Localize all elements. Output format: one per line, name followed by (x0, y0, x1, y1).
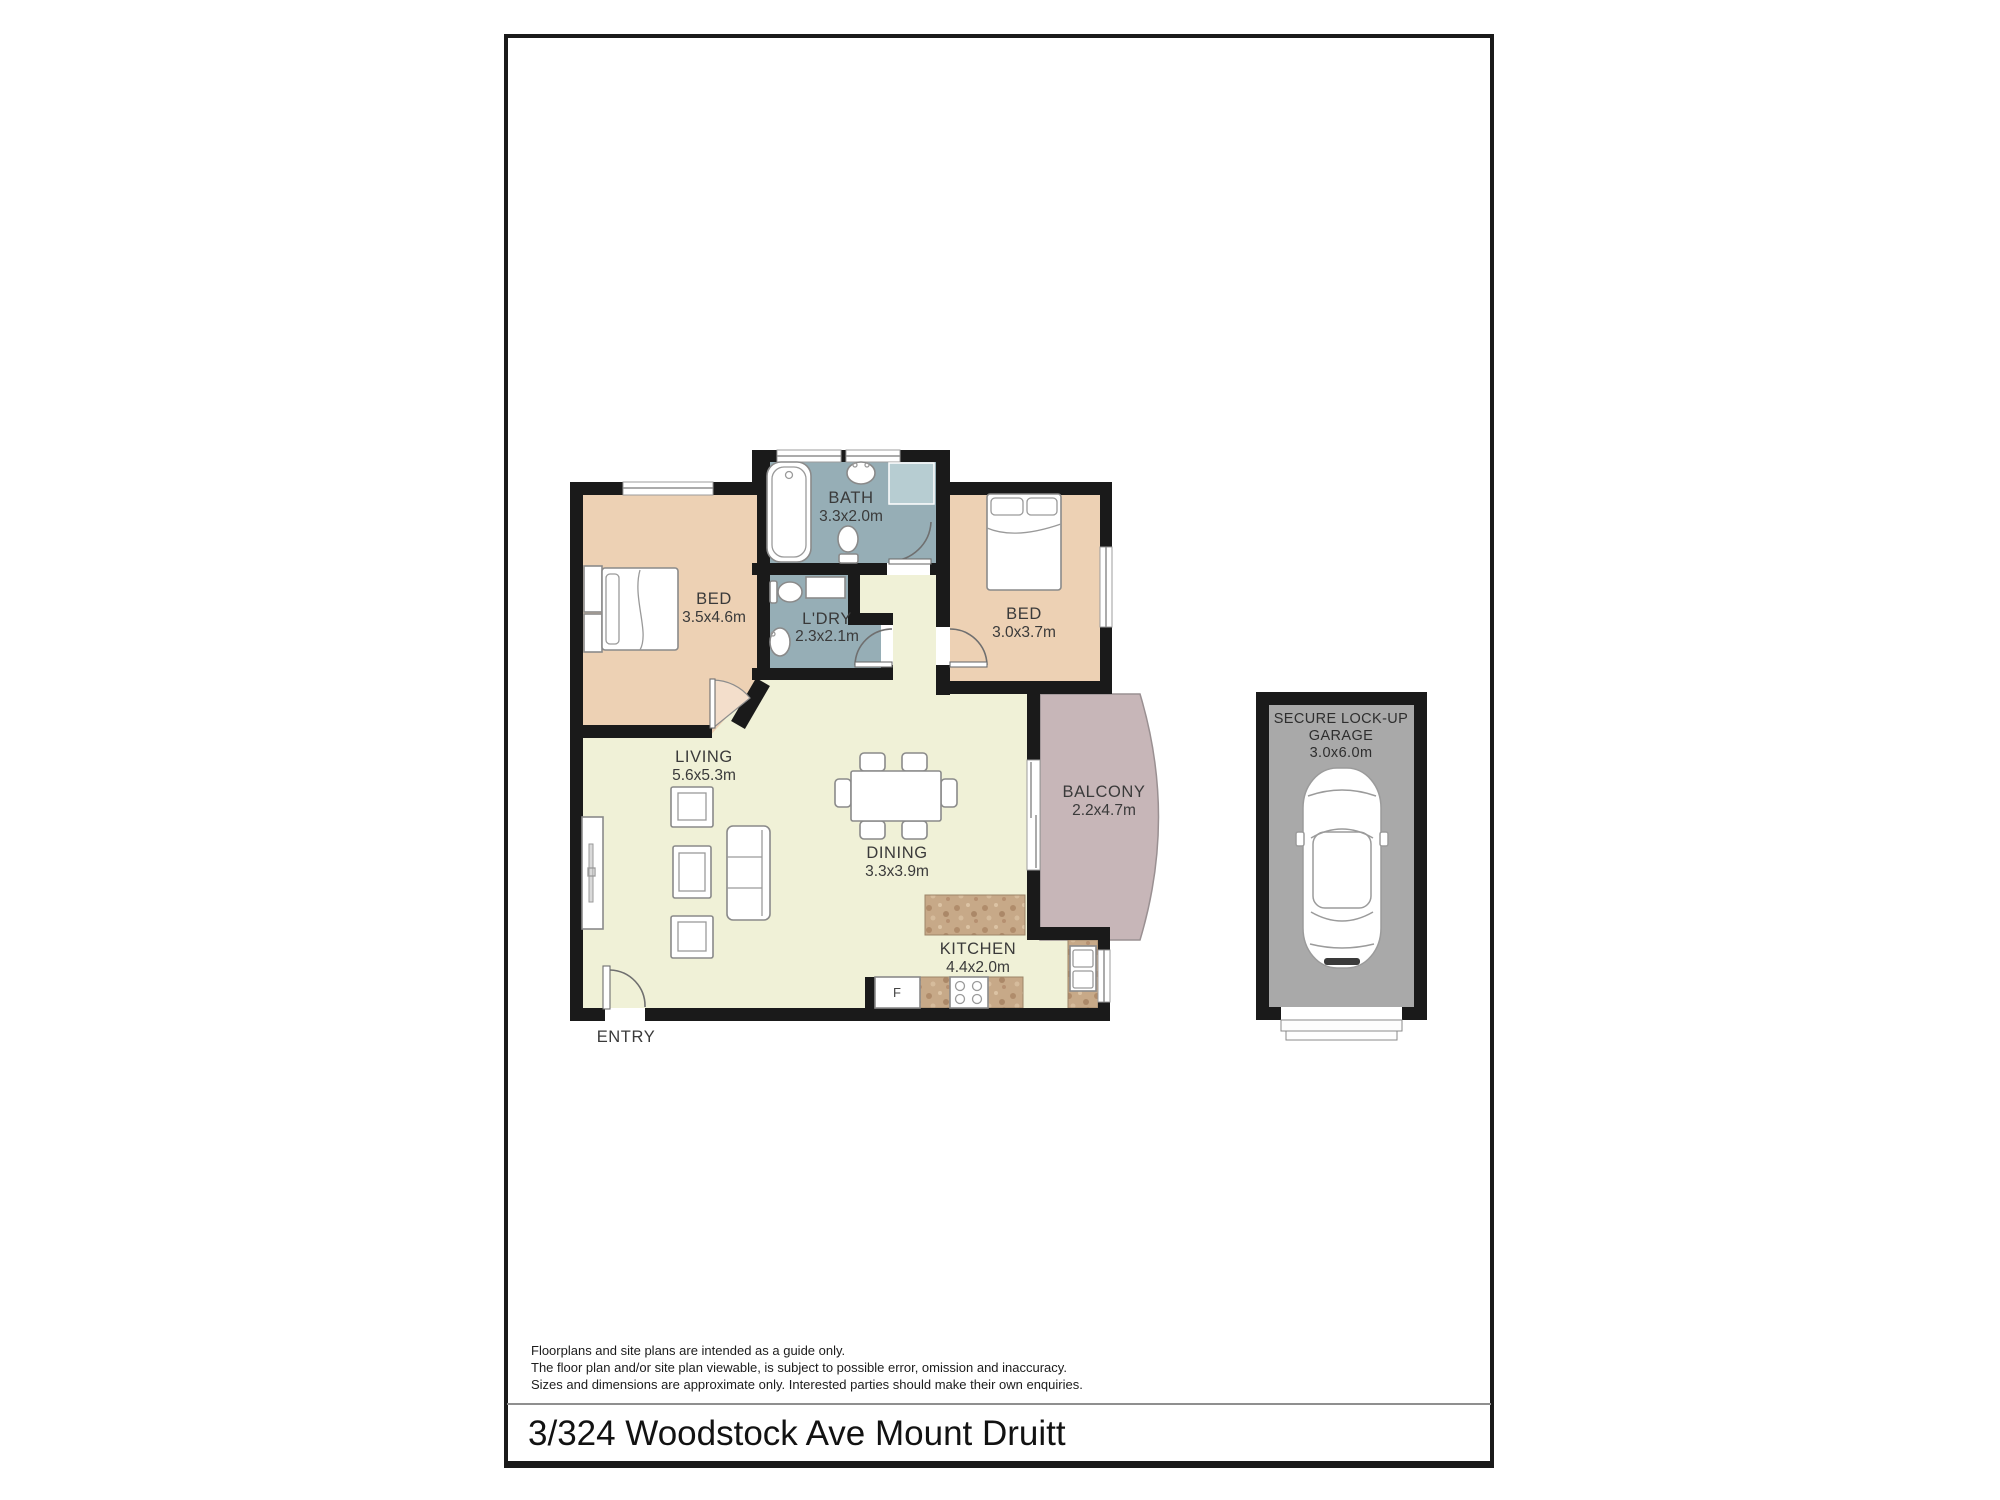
toilet-laundry-icon (770, 581, 802, 603)
window-bed-2 (1100, 547, 1112, 627)
room-dims-balcony: 2.2x4.7m (1072, 802, 1136, 819)
room-dims-bed-1: 3.5x4.6m (682, 609, 746, 626)
floorplan-document: Floorplans and site plans are intended a… (0, 0, 2000, 1500)
toilet-bath-icon (838, 526, 858, 563)
room-dims-bath: 3.3x2.0m (819, 508, 883, 525)
entry-label: ENTRY (597, 1028, 656, 1046)
window-bath-right (846, 450, 900, 462)
garage-door-opening (1281, 1007, 1402, 1020)
bathtub-icon (767, 462, 811, 562)
floorplan-drawing: F (0, 0, 2000, 1500)
washer-icon (806, 577, 845, 598)
room-label-bath: BATH (828, 489, 873, 507)
room-label-dining: DINING (866, 844, 927, 862)
garage-label-line2: GARAGE (1309, 728, 1373, 744)
tv-unit-icon (582, 817, 603, 929)
room-label-bed-2: BED (1006, 605, 1042, 623)
window-kitchen (1098, 950, 1110, 1002)
fridge-icon: F (875, 977, 920, 1008)
car-icon (1296, 768, 1388, 968)
garage: SECURE LOCK-UP GARAGE 3.0x6.0m (1256, 692, 1427, 1040)
room-label-laundry: L'DRY (802, 610, 852, 628)
stove-icon (950, 977, 988, 1008)
garage-roller-door (1281, 1020, 1402, 1040)
room-dims-laundry: 2.3x2.1m (795, 628, 859, 645)
room-label-kitchen: KITCHEN (940, 940, 1017, 958)
double-bed-2-icon (987, 494, 1061, 590)
armchair-icon (673, 846, 711, 898)
window-bed-1 (623, 482, 713, 495)
room-label-bed-1: BED (696, 590, 732, 608)
double-bed-1-icon (584, 566, 678, 652)
sliding-door-balcony (1027, 760, 1040, 870)
room-label-balcony: BALCONY (1062, 783, 1145, 801)
room-dims-kitchen: 4.4x2.0m (946, 959, 1010, 976)
garage-label-line1: SECURE LOCK-UP (1274, 711, 1409, 727)
armchair-icon (671, 916, 713, 958)
vanity-icon (889, 463, 934, 504)
room-label-living: LIVING (675, 748, 733, 766)
room-dims-dining: 3.3x3.9m (865, 863, 929, 880)
armchair-icon (671, 787, 713, 827)
kitchen-sink-icon (1070, 946, 1096, 991)
kitchen-island-counter (925, 895, 1025, 935)
room-dims-living: 5.6x5.3m (672, 767, 736, 784)
window-bath-left (777, 450, 841, 462)
sofa-icon (727, 826, 770, 920)
room-dims-bed-2: 3.0x3.7m (992, 624, 1056, 641)
fridge-label: F (893, 985, 901, 1000)
garage-dims: 3.0x6.0m (1310, 745, 1373, 761)
basin-icon (847, 462, 875, 484)
laundry-tub-icon (770, 628, 790, 656)
